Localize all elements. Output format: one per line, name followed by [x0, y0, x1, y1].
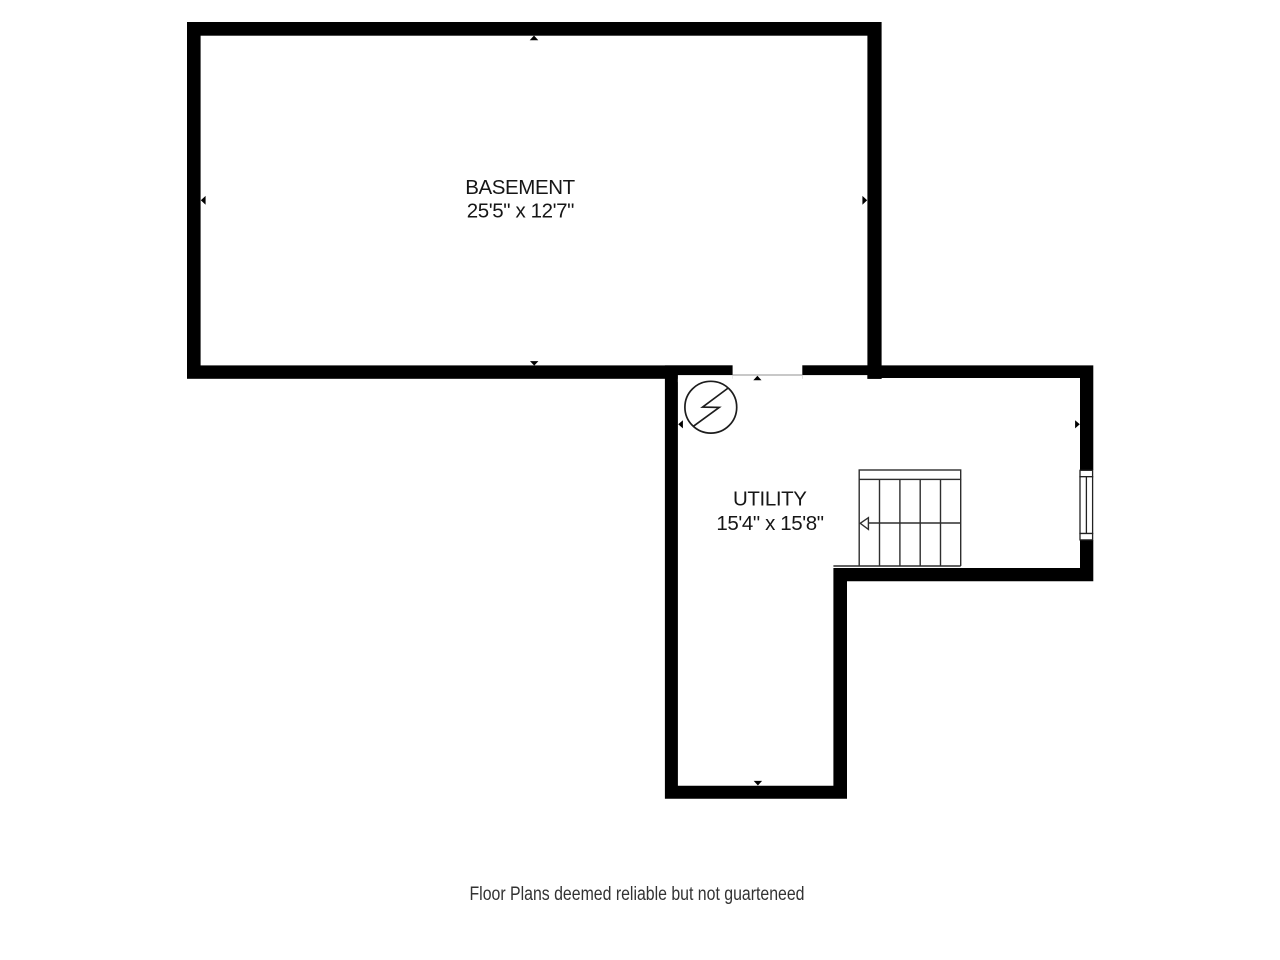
svg-text:15'4" x 15'8": 15'4" x 15'8": [716, 512, 823, 535]
svg-text:Floor Plans deemed reliable bu: Floor Plans deemed reliable but not guar…: [470, 883, 805, 905]
svg-text:25'5" x 12'7": 25'5" x 12'7": [467, 200, 574, 223]
svg-text:BASEMENT: BASEMENT: [465, 176, 575, 199]
svg-text:UTILITY: UTILITY: [733, 488, 807, 511]
